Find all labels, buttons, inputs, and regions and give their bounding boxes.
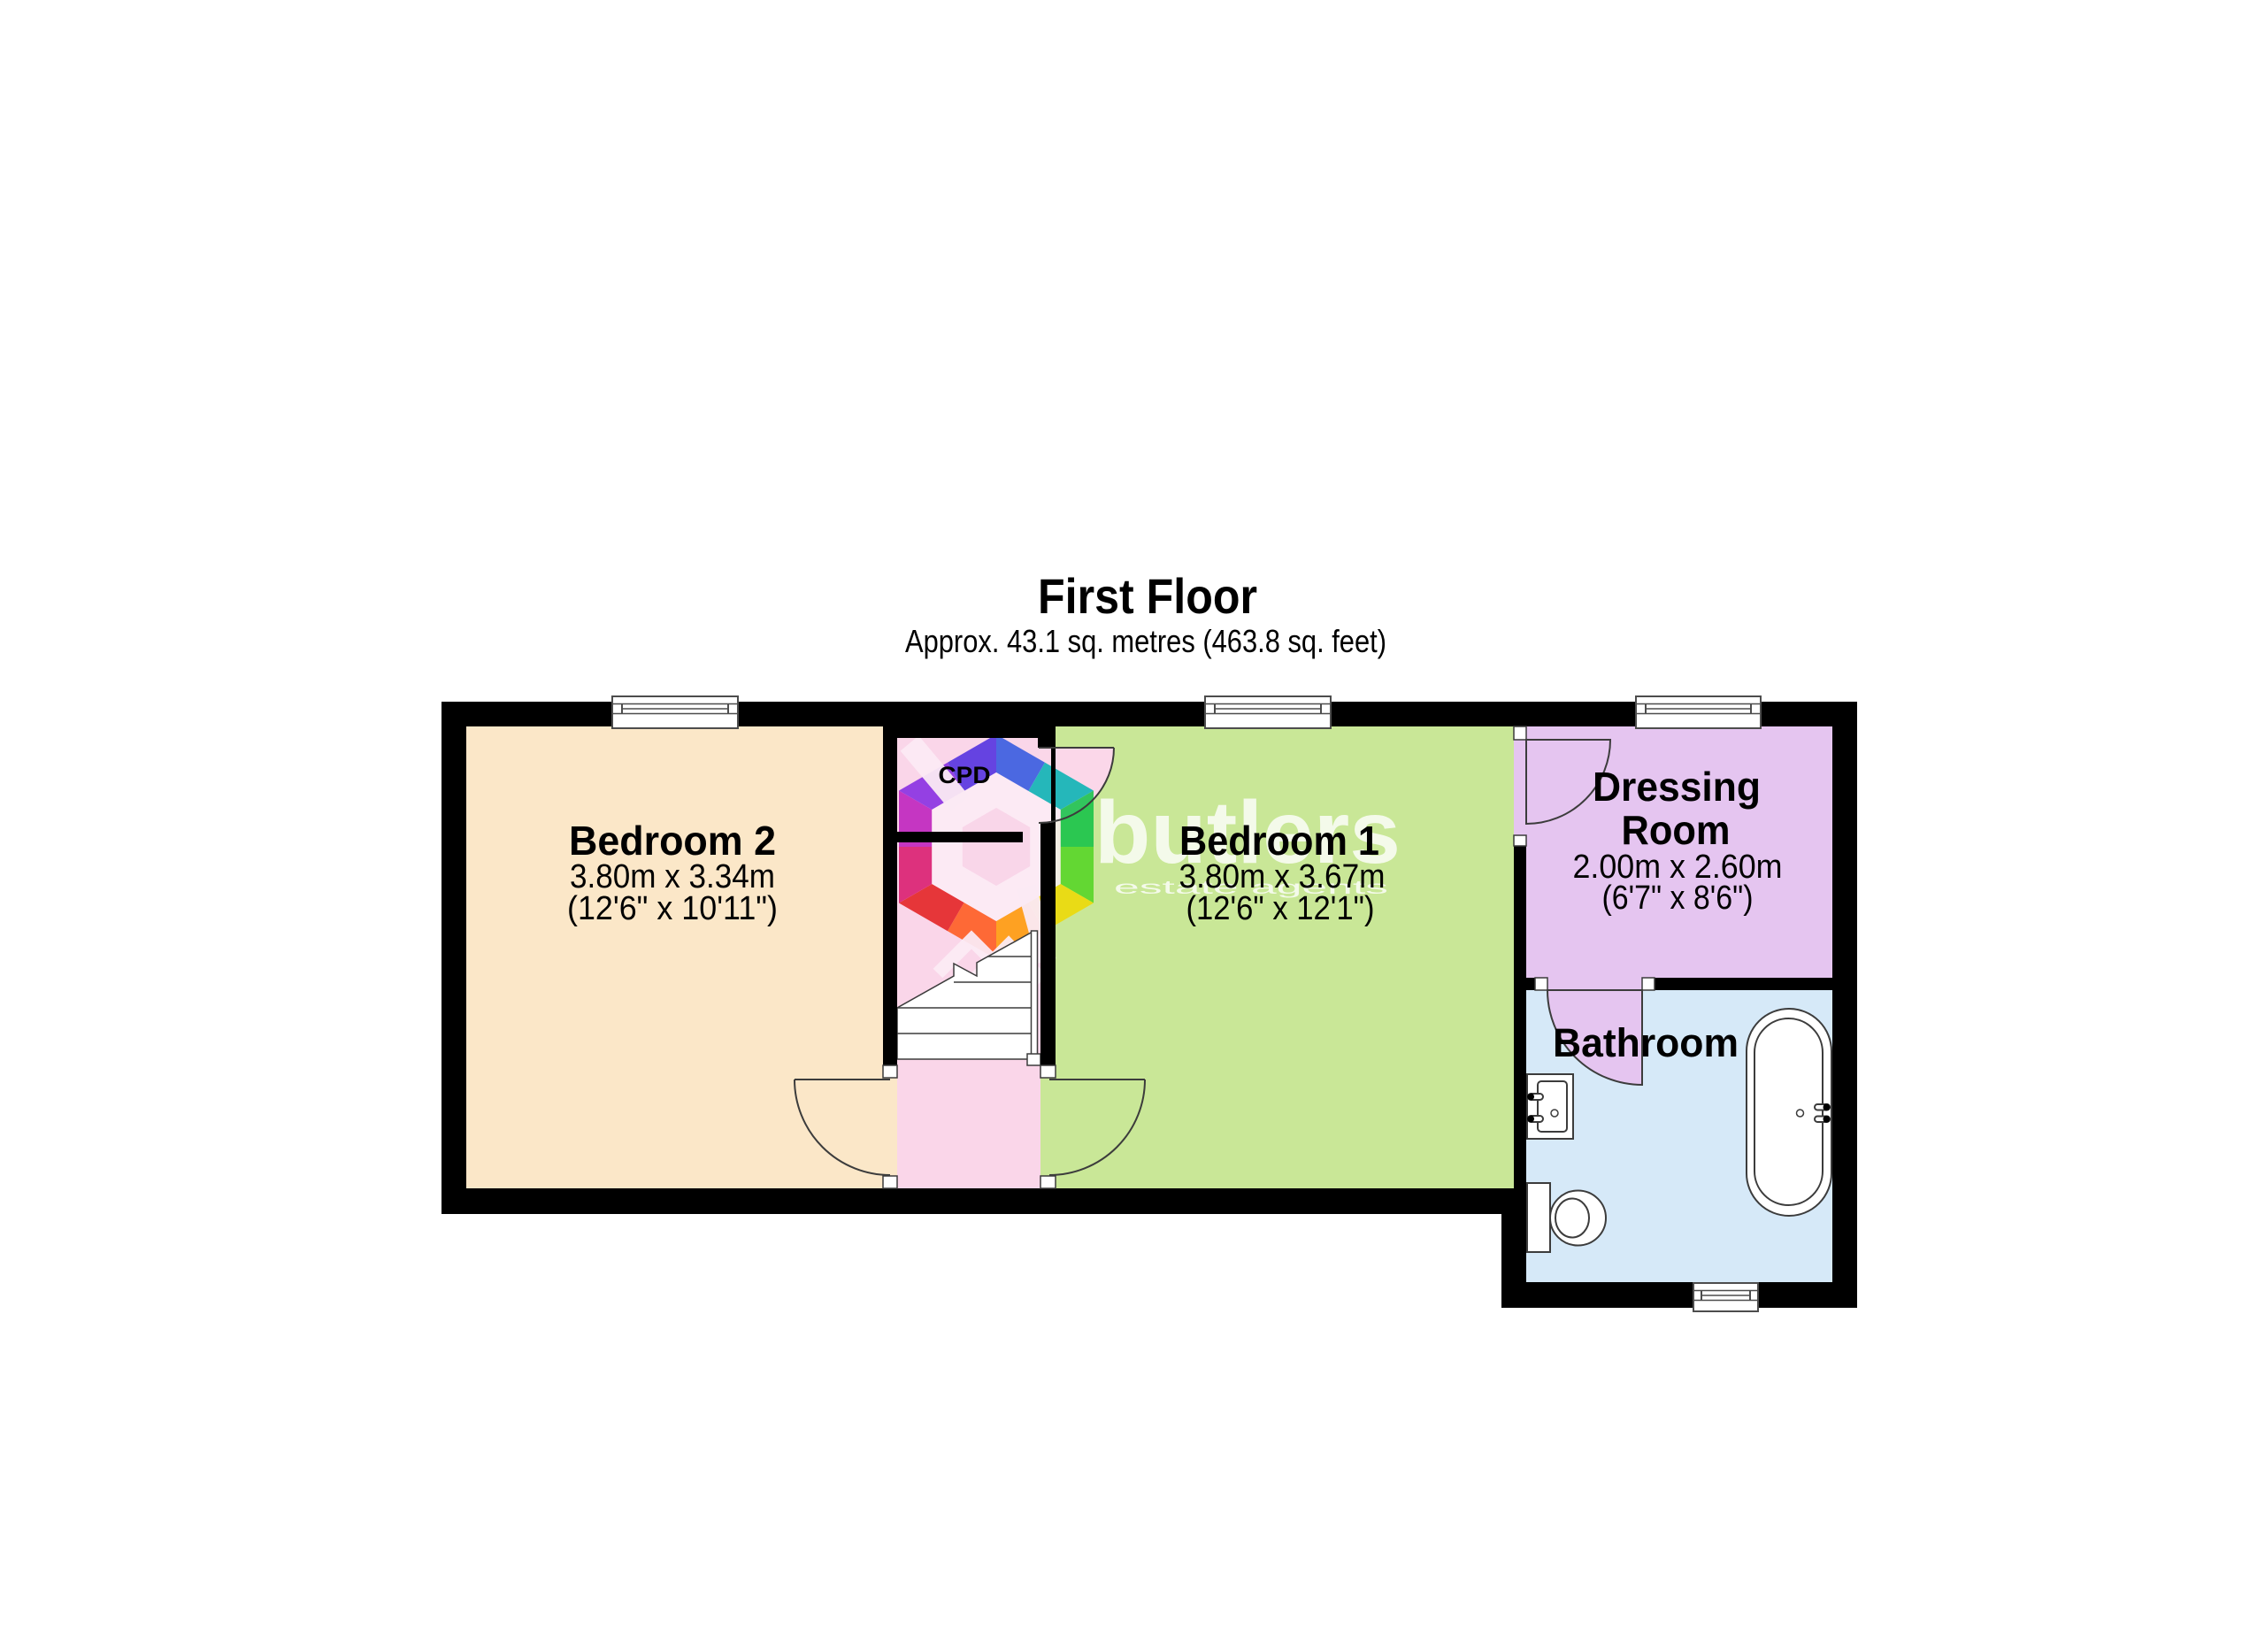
svg-text:(12'6" x 10'11"): (12'6" x 10'11") (567, 890, 778, 927)
svg-text:Room: Room (1622, 807, 1731, 853)
svg-text:CPD: CPD (939, 762, 991, 788)
svg-text:Dressing: Dressing (1593, 764, 1761, 810)
svg-text:Approx. 43.1 sq. metres (463.8: Approx. 43.1 sq. metres (463.8 sq. feet) (905, 623, 1386, 659)
svg-text:(6'7" x 8'6"): (6'7" x 8'6") (1602, 880, 1754, 917)
svg-text:(12'6" x 12'1"): (12'6" x 12'1") (1186, 890, 1375, 927)
svg-text:Bathroom: Bathroom (1553, 1020, 1739, 1065)
svg-text:Bedroom 1: Bedroom 1 (1179, 818, 1379, 864)
svg-text:First Floor: First Floor (1038, 568, 1257, 624)
svg-text:Bedroom 2: Bedroom 2 (569, 818, 776, 864)
